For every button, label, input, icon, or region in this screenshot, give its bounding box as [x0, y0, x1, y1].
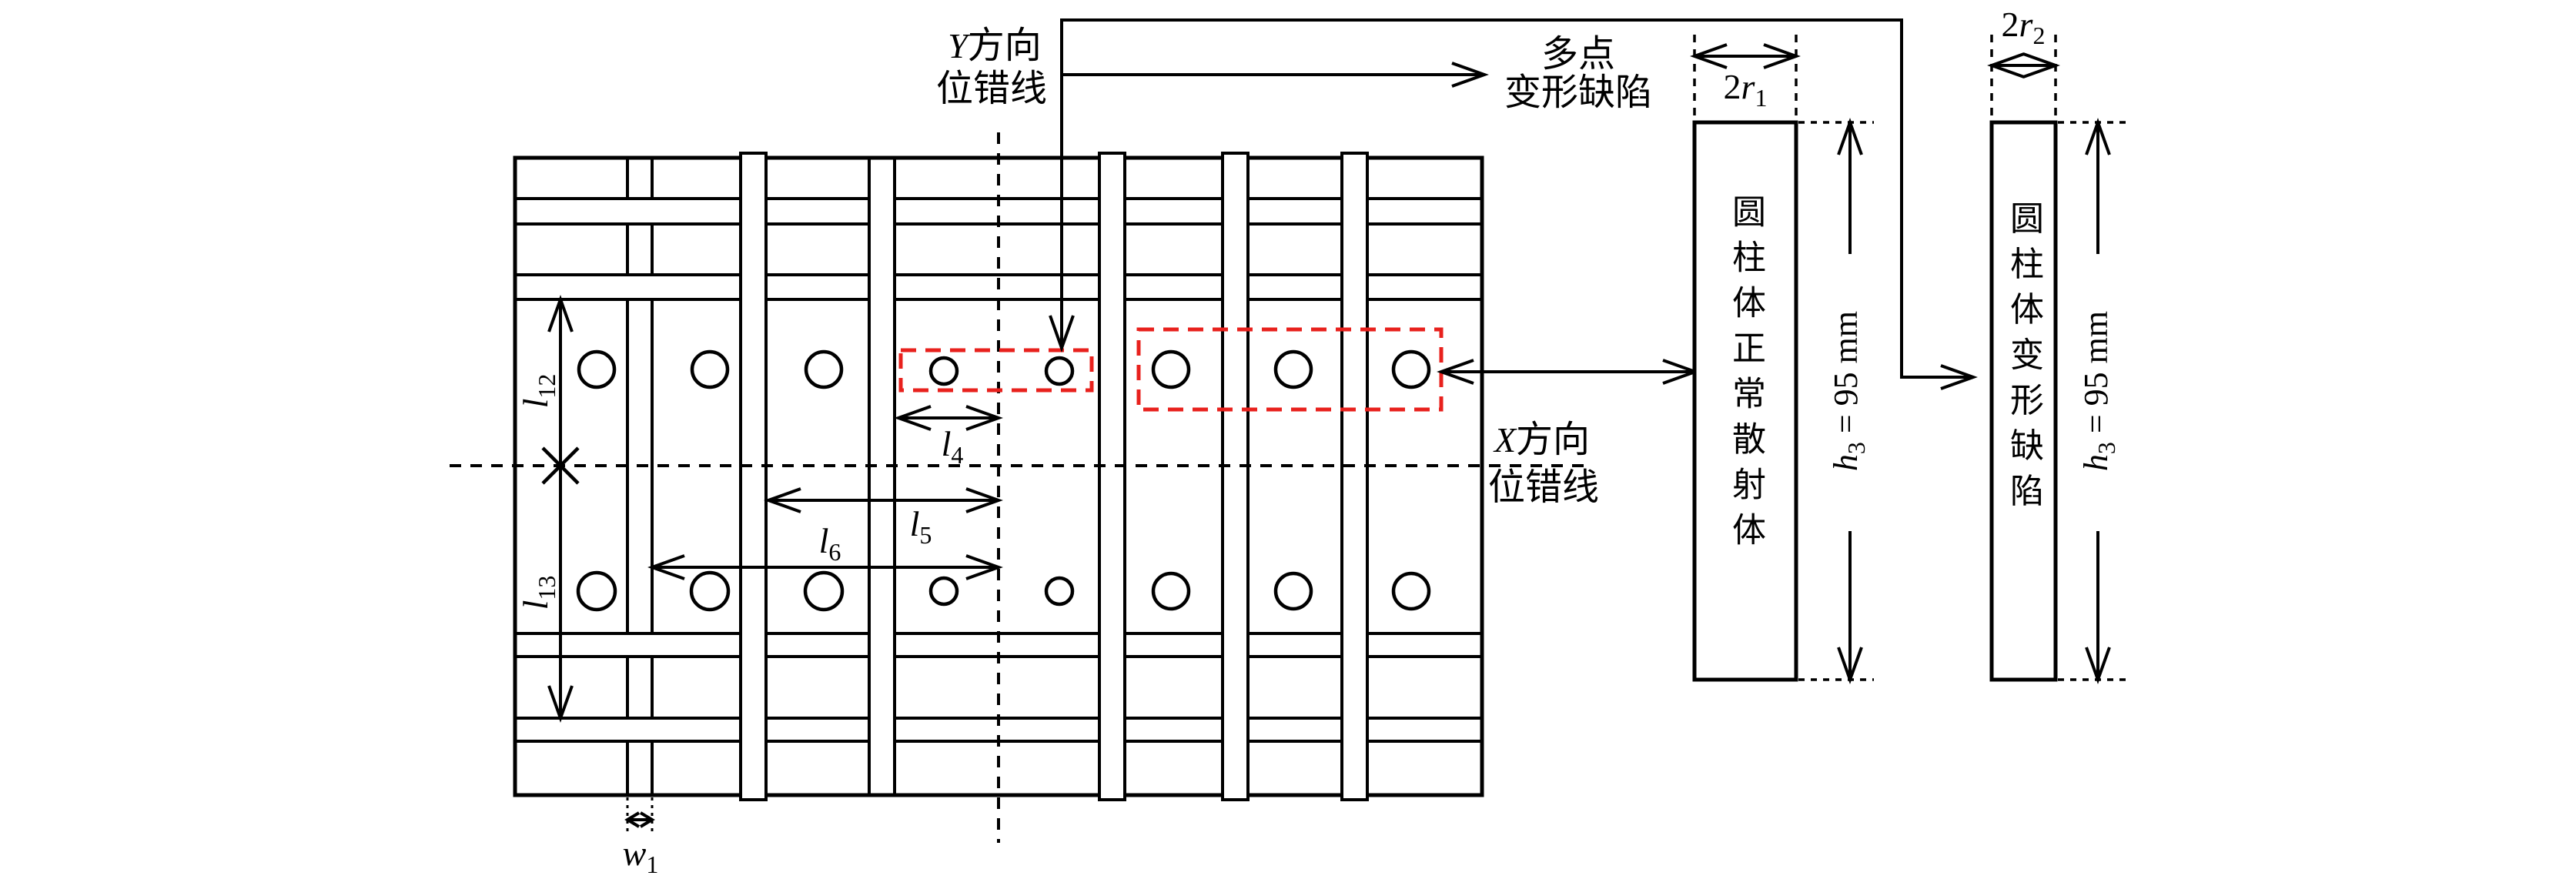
hole-normal	[579, 352, 614, 387]
dim-2r1-label: 2r1	[1724, 69, 1768, 105]
dimension-w1	[627, 797, 652, 836]
hole-normal	[1393, 352, 1429, 387]
hole-deformed	[1046, 358, 1072, 384]
hole-normal	[692, 352, 728, 387]
x-dislocation-label-line1: X方向	[1494, 422, 1590, 459]
vertical-strip-3	[868, 158, 896, 795]
multipoint-defect-label-line2: 变形缺陷	[1504, 75, 1652, 112]
dim-h3-left-label: h3 = 95 mm	[1829, 311, 1863, 471]
vertical-strip-6	[1340, 153, 1369, 800]
cylinder-deformed-label: 圆柱体变形缺陷	[2006, 201, 2040, 519]
vertical-strip-4	[1098, 153, 1126, 800]
y-dislocation-label-line2: 位错线	[936, 71, 1047, 108]
dim-l12-label: l12	[518, 374, 554, 409]
dim-l4-label: l4	[942, 426, 964, 462]
multipoint-defect-label-line1: 多点	[1541, 36, 1615, 73]
dim-h3-right-label: h3 = 95 mm	[2079, 311, 2113, 471]
y-dislocation-label-line1: Y方向	[948, 28, 1042, 65]
dim-l6-label: l6	[819, 523, 841, 559]
hole-deformed	[931, 578, 957, 604]
diagram-geometry	[0, 0, 2576, 879]
vertical-strip-2	[739, 153, 768, 800]
hole-normal	[1393, 573, 1429, 609]
hole-deformed	[931, 358, 957, 384]
hole-normal	[578, 573, 615, 610]
hole-deformed	[1046, 578, 1072, 604]
vertical-strip-5	[1221, 153, 1250, 800]
hole-normal	[1153, 573, 1189, 609]
hole-normal	[1153, 352, 1189, 387]
dim-l13-label: l13	[518, 576, 554, 610]
dim-l5-label: l5	[910, 506, 932, 542]
hole-normal	[691, 573, 728, 610]
dim-2r2-label: 2r2	[2002, 7, 2046, 42]
hole-normal	[1276, 352, 1311, 387]
hole-normal	[805, 573, 842, 610]
hole-normal	[806, 352, 841, 387]
figure-canvas: Y方向 位错线 多点 变形缺陷 X方向 位错线 2r1 2r2 h3 = 95 …	[0, 0, 2576, 879]
dimension-2r2	[1992, 35, 2056, 120]
cylinder-normal-label: 圆柱体正常散射体	[1728, 194, 1762, 557]
dim-w1-label: w1	[623, 836, 659, 871]
hole-normal	[1276, 573, 1311, 609]
x-dislocation-label-line2: 位错线	[1488, 470, 1599, 506]
